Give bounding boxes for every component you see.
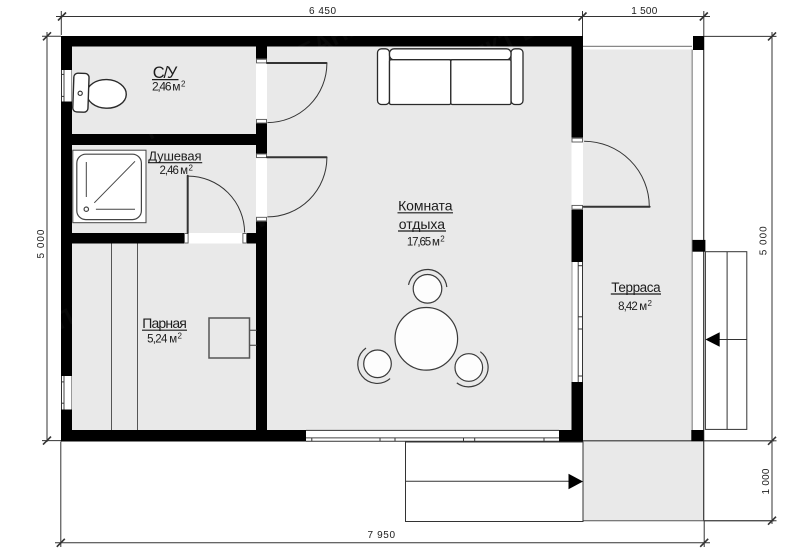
svg-text:2: 2 xyxy=(440,235,445,244)
svg-text:2,46 м: 2,46 м xyxy=(160,165,189,177)
svg-text:5 000: 5 000 xyxy=(759,226,770,255)
svg-text:2,46 м: 2,46 м xyxy=(152,80,181,94)
svg-text:Парная: Парная xyxy=(142,315,187,331)
svg-text:5 000: 5 000 xyxy=(36,229,47,258)
svg-text:5,24 м: 5,24 м xyxy=(147,334,177,346)
svg-text:1 500: 1 500 xyxy=(631,6,657,17)
svg-text:1 000: 1 000 xyxy=(761,468,772,494)
svg-text:Комната: Комната xyxy=(398,198,453,214)
svg-text:7 950: 7 950 xyxy=(368,530,396,541)
svg-text:17,65 м: 17,65 м xyxy=(407,237,440,249)
svg-text:2: 2 xyxy=(178,332,183,341)
svg-text:отдыха: отдыха xyxy=(399,216,445,232)
svg-text:2: 2 xyxy=(648,299,653,308)
svg-text:8,42 м: 8,42 м xyxy=(618,301,647,313)
svg-text:6 450: 6 450 xyxy=(309,6,336,17)
svg-text:Душевая: Душевая xyxy=(148,149,201,164)
svg-text:2: 2 xyxy=(181,80,186,89)
svg-text:2: 2 xyxy=(189,164,194,173)
svg-text:Терраса: Терраса xyxy=(611,280,661,295)
